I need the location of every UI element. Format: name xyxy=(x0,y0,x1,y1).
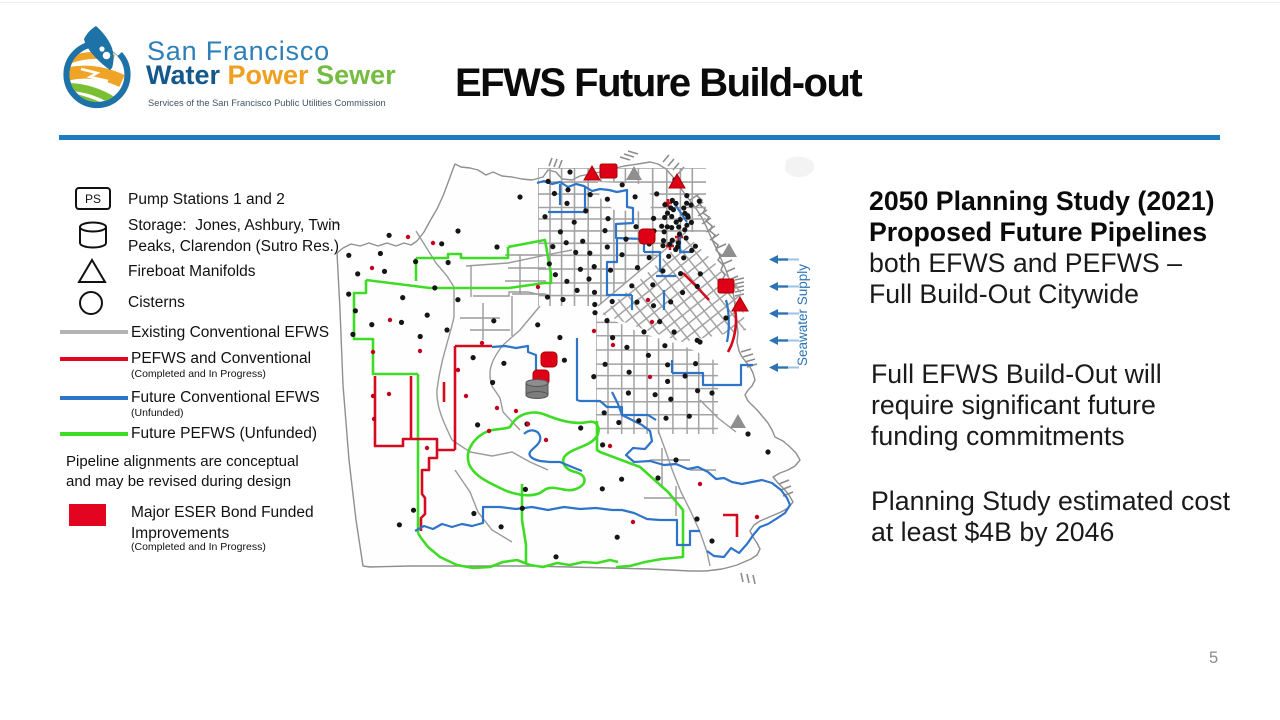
svg-text:Seawater Supply: Seawater Supply xyxy=(795,264,810,366)
svg-text:PS: PS xyxy=(85,192,101,206)
